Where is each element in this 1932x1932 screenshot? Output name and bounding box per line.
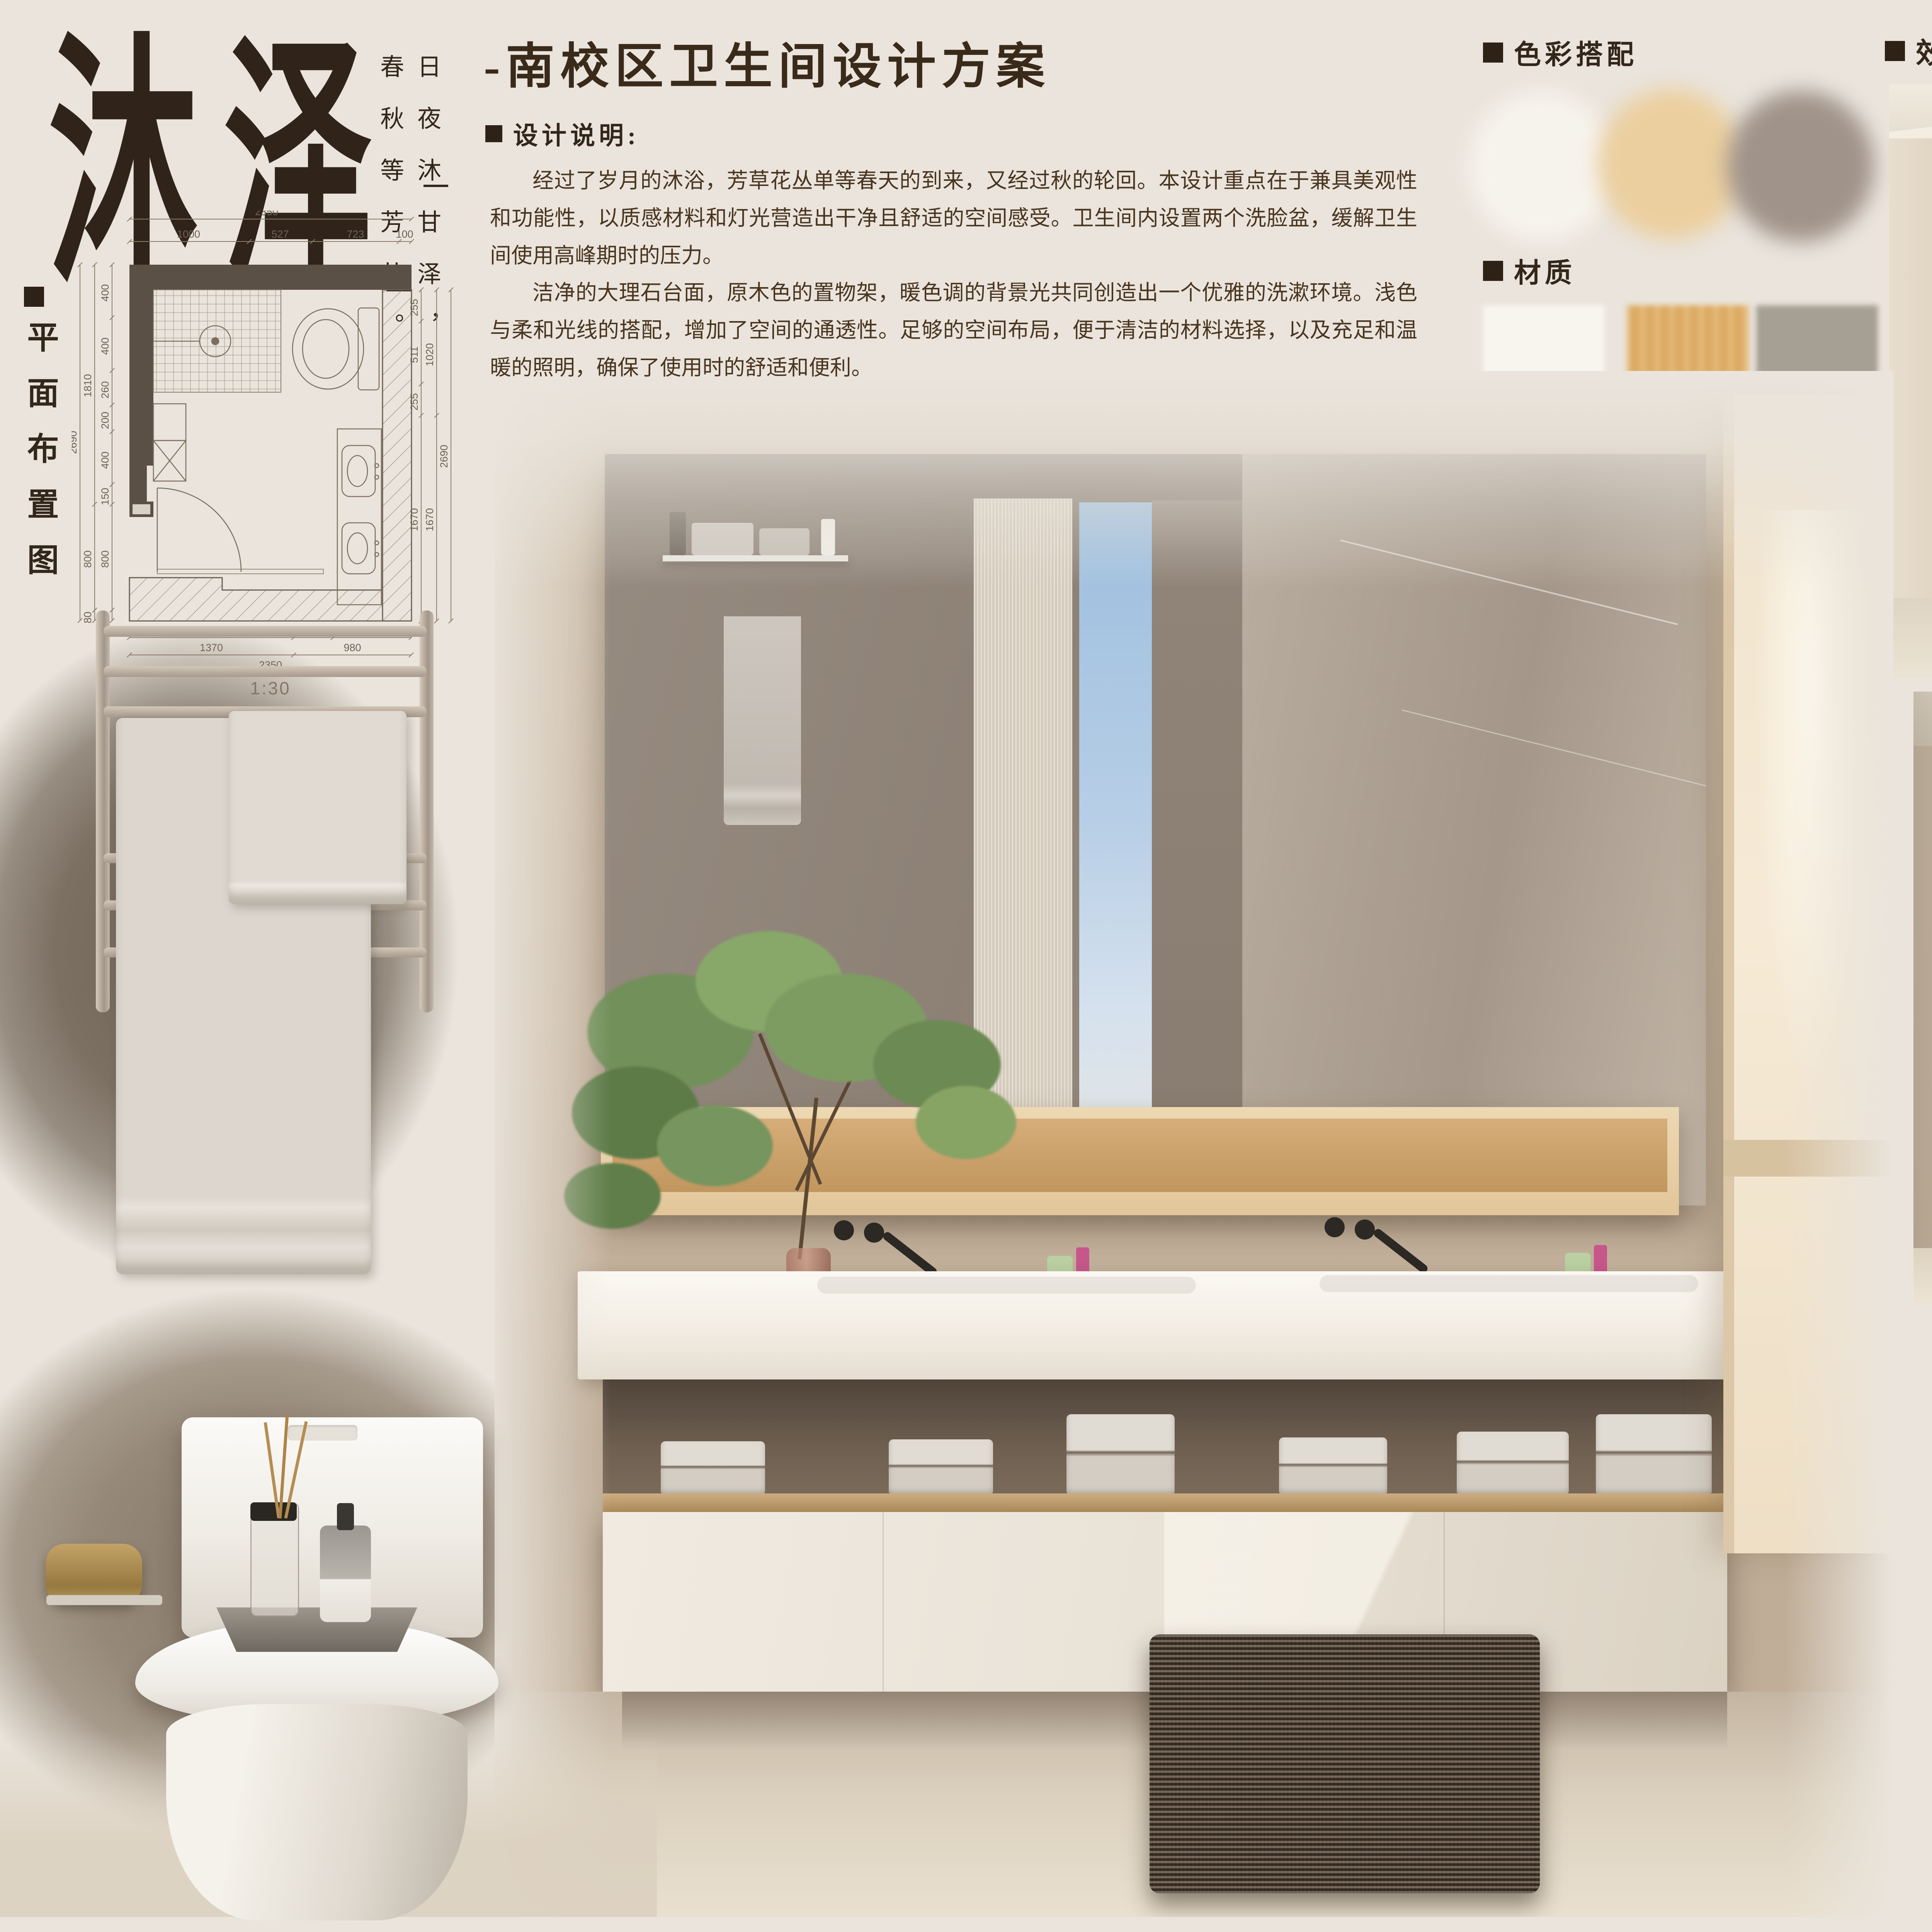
section-bullet	[485, 125, 502, 142]
toilet-tray	[216, 1607, 417, 1652]
plant-foliage	[916, 1086, 1016, 1159]
design-notes-body: 经过了岁月的沐浴，芳草花丛单等春天的到来，又经过秋的轮回。本设计重点在于兼具美观…	[490, 162, 1417, 387]
towel-shelf-plank	[603, 1493, 1731, 1512]
toilet-paper-roll	[46, 1544, 142, 1604]
folded-towel-stack	[1457, 1432, 1569, 1495]
floor	[1913, 1248, 1932, 1304]
svg-text:723: 723	[347, 228, 364, 240]
rack-bar	[104, 626, 427, 637]
double-sink-counter	[578, 1271, 1772, 1379]
svg-text:400: 400	[99, 451, 111, 469]
folded-towel-stack	[889, 1439, 993, 1495]
section-bullet	[1483, 43, 1503, 63]
faucet-handle	[834, 1220, 854, 1240]
svg-text:527: 527	[271, 228, 289, 240]
toilet-base	[166, 1704, 468, 1920]
shower-floor	[1889, 598, 1932, 678]
faucet-handle	[1355, 1219, 1375, 1240]
svg-text:1020: 1020	[424, 343, 435, 366]
svg-text:2690: 2690	[438, 445, 450, 468]
color-swatch-sand-beige	[1598, 89, 1745, 240]
left-wall-shade	[1913, 692, 1932, 1304]
svg-text:1810: 1810	[82, 374, 94, 397]
renders-heading: 效果图	[1885, 30, 1932, 71]
sink-basin-right	[1320, 1275, 1698, 1292]
toilet-flush-button	[288, 1425, 357, 1440]
svg-text:2350: 2350	[255, 211, 278, 218]
section-bullet	[1885, 41, 1905, 61]
fade-top	[495, 371, 1893, 587]
palette-heading: 色彩搭配	[1483, 33, 1638, 72]
design-notes-heading: 设计说明:	[485, 116, 639, 151]
folded-towel-stack	[1279, 1437, 1387, 1495]
svg-text:400: 400	[99, 337, 111, 355]
mirror-hanging-towel-reflection	[724, 616, 801, 825]
faucet-handle	[1325, 1217, 1345, 1237]
renders-heading-label: 效果图	[1916, 30, 1932, 71]
render-vanity-daylight	[1913, 692, 1932, 1304]
sink-basin-left	[817, 1277, 1196, 1294]
fade-left	[495, 371, 611, 1917]
plan-cabinet	[153, 404, 186, 481]
plan-toilet	[293, 308, 379, 390]
dropper-bottle	[320, 1526, 371, 1622]
design-notes-paragraph: 经过了岁月的沐浴，芳草花丛单等春天的到来，又经过秋的轮回。本设计重点在于兼具美观…	[490, 162, 1417, 274]
side-wall	[1889, 138, 1932, 678]
main-rendering	[495, 371, 1893, 1917]
section-bullet	[1483, 261, 1503, 281]
svg-text:200: 200	[99, 412, 111, 429]
mirror-pillar-reflection	[1152, 500, 1243, 1206]
rack-bar	[104, 666, 427, 677]
design-notes-heading-label: 设计说明:	[513, 116, 639, 151]
section-bullet	[24, 287, 44, 307]
design-poster: { "brand": { "logo": "沐泽", "tagline_col_…	[0, 0, 1932, 1917]
materials-heading-label: 材质	[1514, 251, 1576, 290]
palette-heading-label: 色彩搭配	[1514, 33, 1638, 72]
faucet-handle	[864, 1223, 884, 1243]
design-notes-paragraph: 洁净的大理石台面，原木色的置物架，暖色调的背景光共同创造出一个优雅的洗漱环境。浅…	[490, 274, 1417, 386]
tagline-underline	[423, 185, 448, 187]
color-swatch-taupe-gray	[1727, 91, 1874, 241]
dropper-cap	[337, 1503, 354, 1530]
svg-text:1000: 1000	[177, 228, 200, 240]
mirror-sky-reflection	[1079, 502, 1153, 1136]
svg-text:150: 150	[99, 488, 111, 505]
cabinet-seam	[883, 1512, 884, 1692]
svg-text:2690: 2690	[71, 431, 79, 454]
plant-foliage	[657, 1105, 773, 1186]
svg-text:1670: 1670	[424, 508, 435, 531]
fade-right	[1785, 371, 1893, 1917]
folded-towel-stack	[1066, 1414, 1175, 1495]
hand-towel	[229, 711, 406, 904]
svg-text:400: 400	[99, 284, 111, 301]
svg-text:260: 260	[99, 381, 111, 398]
folded-towel-stack	[661, 1441, 765, 1495]
toilet-paper-holder	[46, 1595, 162, 1605]
folded-towel-stack	[1596, 1414, 1712, 1495]
page-title: -南校区卫生间设计方案	[484, 27, 1051, 97]
rattan-basket	[1150, 1634, 1540, 1893]
color-swatch-warm-white	[1468, 91, 1615, 241]
render-shower-room	[1889, 84, 1932, 678]
svg-text:100: 100	[396, 228, 413, 240]
materials-heading: 材质	[1483, 251, 1576, 290]
